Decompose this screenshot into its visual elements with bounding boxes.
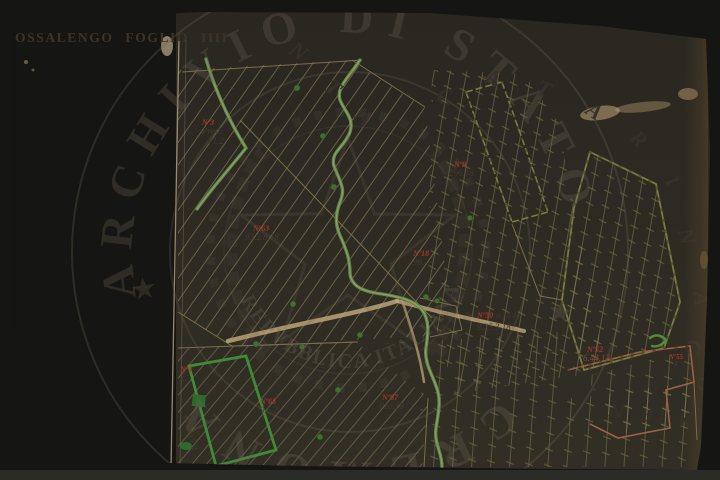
boundary-letter: N <box>678 409 693 429</box>
boundary-letter: N <box>609 399 626 421</box>
parcel-label: Nº67 Pra.18 <box>379 394 404 412</box>
parcel-area: 9.6.2 <box>260 406 278 415</box>
boundary-letter: C <box>436 85 453 108</box>
parcel-label: Nº50a 30.4 9.25.3.18 <box>477 306 516 332</box>
parcel-label: Nº4 2. <box>180 366 192 384</box>
parcel-area: 6.44.12 <box>583 354 610 363</box>
stamp-star-emblem <box>210 112 486 388</box>
parcel-area: 9.25.3.18 <box>477 323 516 332</box>
parcel-number: Nº50 <box>477 311 493 320</box>
photo-frame: ARCHIVIO DI STATO CREMONA REPVBBLICA ITA… <box>0 0 720 480</box>
svg-text:CREMONA: CREMONA <box>157 379 528 480</box>
parcel-label: Nº52 6.44.12 <box>583 346 610 364</box>
parcel-area: 93.2.6.18 <box>245 233 279 242</box>
map-title: OSSALENGO FOGLIO IIII <box>15 30 228 46</box>
boundary-letter: F <box>640 404 655 425</box>
parcel-area: 4. <box>674 361 683 368</box>
parcel-label: Nº9 296.18 <box>449 161 474 179</box>
photo-bottom-strip <box>0 470 720 480</box>
stamp-text-bottom: CREMONA <box>157 379 528 480</box>
parcel-area: 296.18 <box>449 169 474 178</box>
map-sheet: ARCHIVIO DI STATO CREMONA REPVBBLICA ITA… <box>0 0 720 480</box>
parcel-label: Nº63 93.2.6.18 <box>245 225 279 243</box>
parcel-label: Nº18 96.— <box>413 250 432 268</box>
boundary-letter: C <box>682 339 705 356</box>
parcel-label: Nº3 Prad: 71.2 <box>202 119 224 146</box>
boundary-letter: I <box>658 407 666 425</box>
parcel-area: 96.— <box>413 258 432 267</box>
stamp-star-left: ★ <box>127 274 160 303</box>
parcel-area: 2. <box>180 374 192 383</box>
parcel-area: Pra.18 <box>379 402 404 411</box>
boundary-letter: A <box>690 291 713 308</box>
boundary-letter: E <box>697 413 712 434</box>
parcel-area: 71.2 <box>208 137 224 146</box>
parcel-label: Nº65 9.6.2 <box>260 398 278 416</box>
stamp-star-right: ★ <box>544 298 577 327</box>
parcel-extra: a 30.4 <box>496 311 516 320</box>
parcel-label: Nº55 4. <box>669 354 683 369</box>
